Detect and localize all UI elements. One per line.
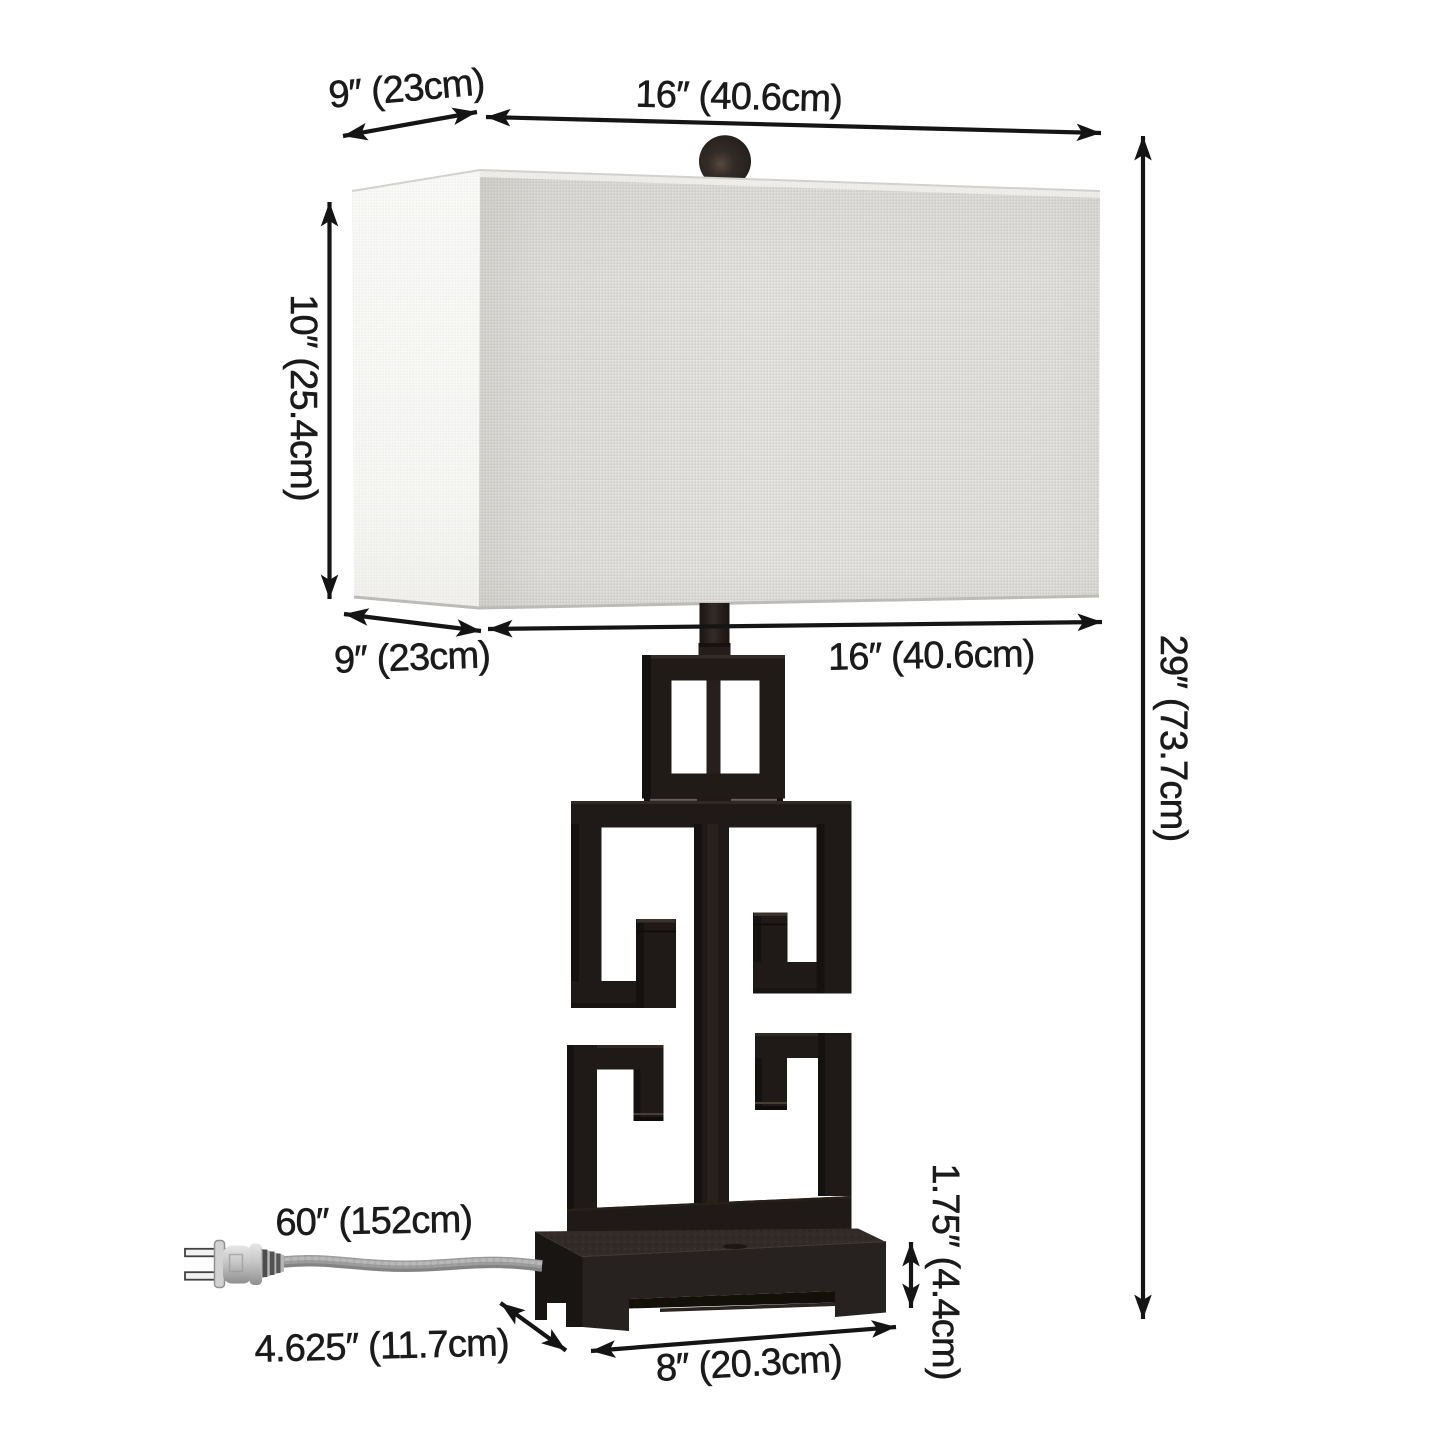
svg-text:10″ (25.4cm): 10″ (25.4cm) [282, 294, 324, 501]
svg-text:9″ (23cm): 9″ (23cm) [333, 634, 491, 681]
svg-text:4.625″ (11.7cm): 4.625″ (11.7cm) [254, 1322, 509, 1371]
svg-text:60″ (152cm): 60″ (152cm) [275, 1199, 473, 1244]
svg-text:16″ (40.6cm): 16″ (40.6cm) [828, 633, 1035, 679]
svg-text:16″ (40.6cm): 16″ (40.6cm) [635, 73, 843, 120]
svg-text:1.75″ (4.4cm): 1.75″ (4.4cm) [924, 1163, 966, 1379]
svg-text:29″ (73.7cm): 29″ (73.7cm) [1152, 635, 1194, 842]
